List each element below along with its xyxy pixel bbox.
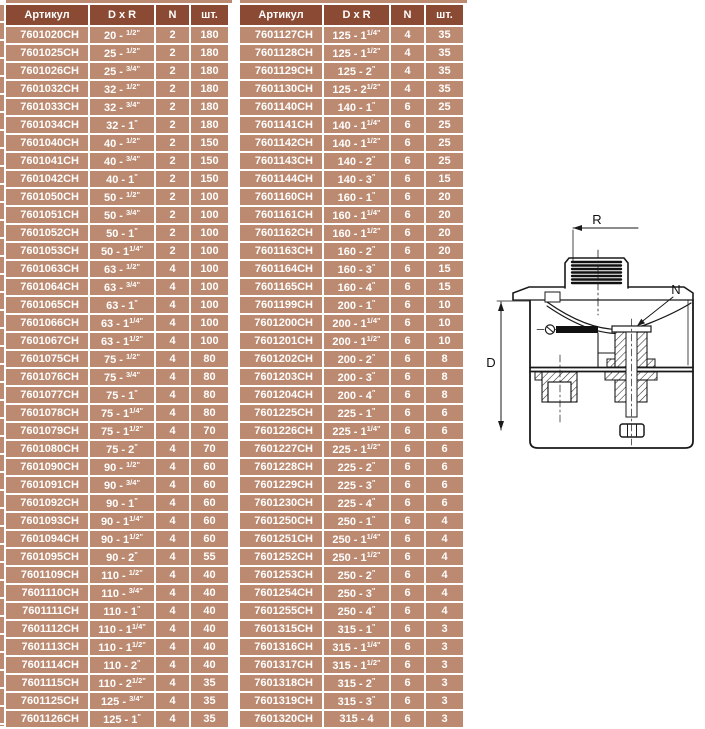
n-cell: 6 — [391, 513, 424, 529]
article-cell: 7601115CH — [6, 675, 88, 691]
qty-cell: 60 — [191, 513, 228, 529]
article-cell: 7601203CH — [240, 369, 322, 385]
table-row: 7601092CH90 - 1"460 — [6, 495, 228, 511]
arrowhead — [498, 421, 504, 430]
qty-cell: 4 — [426, 585, 463, 601]
qty-cell: 4 — [426, 603, 463, 619]
n-cell: 2 — [156, 207, 189, 223]
thread-profile — [572, 262, 621, 283]
n-cell: 6 — [391, 171, 424, 187]
dxr-cell: 25 - 1/2" — [90, 45, 154, 61]
article-cell: 7601317CH — [240, 657, 322, 673]
table-row: 7601042CH40 - 1"2150 — [6, 171, 228, 187]
dxr-cell: 250 - 11/2" — [324, 549, 389, 565]
dxr-cell: 63 - 1/2" — [90, 261, 154, 277]
column-header-n: N — [391, 5, 424, 25]
dimension-label-d: D — [486, 355, 495, 370]
qty-cell: 55 — [191, 549, 228, 565]
n-cell: 4 — [156, 675, 189, 691]
qty-cell: 25 — [426, 153, 463, 169]
article-cell: 7601067CH — [6, 333, 88, 349]
article-cell: 7601230CH — [240, 495, 322, 511]
dxr-cell: 140 - 2" — [324, 153, 389, 169]
dxr-cell: 110 - 11/2" — [90, 639, 154, 655]
dxr-cell: 50 - 3/4" — [90, 207, 154, 223]
table-row: 7601095CH90 - 2"455 — [6, 549, 228, 565]
table-row: 7601204CH200 - 4"68 — [240, 387, 463, 403]
article-cell: 7601255CH — [240, 603, 322, 619]
table-row: 7601050CH50 - 1/2"2100 — [6, 189, 228, 205]
qty-cell: 100 — [191, 189, 228, 205]
dxr-cell: 90 - 11/4" — [90, 513, 154, 529]
n-cell: 6 — [391, 549, 424, 565]
article-cell: 7601140CH — [240, 99, 322, 115]
qty-cell: 80 — [191, 351, 228, 367]
technical-drawing: R D N — [485, 195, 705, 485]
article-cell: 7601040CH — [6, 135, 88, 151]
dxr-cell: 110 - 1/2" — [90, 567, 154, 583]
clamp-collar — [513, 287, 693, 300]
n-cell: 6 — [391, 135, 424, 151]
dxr-cell: 160 - 11/2" — [324, 225, 389, 241]
qty-cell: 180 — [191, 99, 228, 115]
article-cell: 7601050CH — [6, 189, 88, 205]
n-cell: 6 — [391, 153, 424, 169]
article-cell: 7601201CH — [240, 333, 322, 349]
qty-cell: 15 — [426, 261, 463, 277]
article-cell: 7601091CH — [6, 477, 88, 493]
n-cell: 2 — [156, 153, 189, 169]
dxr-cell: 160 - 4" — [324, 279, 389, 295]
n-cell: 4 — [156, 441, 189, 457]
n-cell: 2 — [156, 27, 189, 43]
qty-cell: 3 — [426, 711, 463, 727]
article-cell: 7601114CH — [6, 657, 88, 673]
catalog-page: Артикул D x R N шт. 7601020CH20 - 1/2"21… — [0, 0, 705, 726]
n-cell: 6 — [391, 369, 424, 385]
table-row: 7601093CH90 - 11/4"460 — [6, 513, 228, 529]
qty-cell: 40 — [191, 621, 228, 637]
dxr-cell: 110 - 2" — [90, 657, 154, 673]
article-cell: 7601020CH — [6, 27, 88, 43]
n-cell: 2 — [156, 81, 189, 97]
qty-cell: 10 — [426, 315, 463, 331]
dxr-cell: 250 - 11/4" — [324, 531, 389, 547]
dxr-cell: 50 - 1/2" — [90, 189, 154, 205]
dxr-cell: 225 - 1" — [324, 405, 389, 421]
table-row: 7601077CH75 - 1"480 — [6, 387, 228, 403]
table-row: 7601020CH20 - 1/2"2180 — [6, 27, 228, 43]
qty-cell: 6 — [426, 477, 463, 493]
qty-cell: 60 — [191, 495, 228, 511]
dxr-cell: 75 - 11/2" — [90, 423, 154, 439]
n-cell: 4 — [156, 315, 189, 331]
dxr-cell: 160 - 2" — [324, 243, 389, 259]
qty-cell: 80 — [191, 387, 228, 403]
table-row: 7601025CH25 - 1/2"2180 — [6, 45, 228, 61]
dxr-cell: 200 - 2" — [324, 351, 389, 367]
qty-cell: 3 — [426, 621, 463, 637]
qty-cell: 180 — [191, 117, 228, 133]
article-cell: 7601063CH — [6, 261, 88, 277]
n-cell: 6 — [391, 621, 424, 637]
n-cell: 6 — [391, 243, 424, 259]
table-row: 7601113CH110 - 11/2"440 — [6, 639, 228, 655]
catalog-table-left: Артикул D x R N шт. 7601020CH20 - 1/2"21… — [4, 3, 230, 729]
arrowhead — [498, 302, 504, 311]
qty-cell: 100 — [191, 225, 228, 241]
article-cell: 7601127CH — [240, 27, 322, 43]
dxr-cell: 50 - 11/4" — [90, 243, 154, 259]
n-cell: 2 — [156, 117, 189, 133]
column-header-dxr: D x R — [90, 5, 154, 25]
dxr-cell: 125 - 2" — [324, 63, 389, 79]
column-header-n: N — [156, 5, 189, 25]
qty-cell: 100 — [191, 261, 228, 277]
n-cell: 6 — [391, 99, 424, 115]
dimension-label-r: R — [592, 212, 601, 227]
dxr-cell: 200 - 1" — [324, 297, 389, 313]
article-cell: 7601090CH — [6, 459, 88, 475]
dxr-cell: 110 - 21/2" — [90, 675, 154, 691]
qty-cell: 6 — [426, 495, 463, 511]
dxr-cell: 225 - 11/4" — [324, 423, 389, 439]
article-cell: 7601095CH — [6, 549, 88, 565]
dxr-cell: 200 - 11/2" — [324, 333, 389, 349]
dxr-cell: 315 - 11/4" — [324, 639, 389, 655]
dxr-cell: 110 - 11/4" — [90, 621, 154, 637]
dxr-cell: 63 - 1" — [90, 297, 154, 313]
column-header-dxr: D x R — [324, 5, 389, 25]
qty-cell: 40 — [191, 603, 228, 619]
table-row: 7601228CH225 - 2"66 — [240, 459, 463, 475]
header-row: Артикул D x R N шт. — [240, 5, 463, 25]
table-row: 7601317CH315 - 11/2"63 — [240, 657, 463, 673]
article-cell: 7601053CH — [6, 243, 88, 259]
table-row: 7601112CH110 - 11/4"440 — [6, 621, 228, 637]
dxr-cell: 40 - 1/2" — [90, 135, 154, 151]
qty-cell: 100 — [191, 333, 228, 349]
table-row: 7601251CH250 - 11/4"64 — [240, 531, 463, 547]
table-row: 7601250CH250 - 1"64 — [240, 513, 463, 529]
qty-cell: 100 — [191, 297, 228, 313]
dxr-cell: 32 - 1/2" — [90, 81, 154, 97]
table-row: 7601320CH315 - 463 — [240, 711, 463, 727]
dxr-cell: 110 - 1" — [90, 603, 154, 619]
dimension-label-n: N — [671, 282, 680, 297]
article-cell: 7601228CH — [240, 459, 322, 475]
qty-cell: 35 — [191, 711, 228, 727]
article-cell: 7601165CH — [240, 279, 322, 295]
table-row: 7601128CH125 - 11/2"435 — [240, 45, 463, 61]
dxr-cell: 40 - 3/4" — [90, 153, 154, 169]
table-row: 7601109CH110 - 1/2"440 — [6, 567, 228, 583]
qty-cell: 60 — [191, 531, 228, 547]
qty-cell: 10 — [426, 333, 463, 349]
dxr-cell: 125 - 1" — [90, 711, 154, 727]
table-row: 7601140CH140 - 1"625 — [240, 99, 463, 115]
article-cell: 7601202CH — [240, 351, 322, 367]
n-cell: 2 — [156, 45, 189, 61]
table-row: 7601230CH225 - 4"66 — [240, 495, 463, 511]
qty-cell: 8 — [426, 369, 463, 385]
table-row: 7601125CH125 - 3/4"435 — [6, 693, 228, 709]
table-row: 7601318CH315 - 2"63 — [240, 675, 463, 691]
n-cell: 4 — [156, 477, 189, 493]
dxr-cell: 50 - 1" — [90, 225, 154, 241]
table-row: 7601114CH110 - 2"440 — [6, 657, 228, 673]
table-row: 7601127CH125 - 11/4"435 — [240, 27, 463, 43]
n-cell: 6 — [391, 441, 424, 457]
n-cell: 6 — [391, 207, 424, 223]
dxr-cell: 110 - 3/4" — [90, 585, 154, 601]
table-row: 7601165CH160 - 4"615 — [240, 279, 463, 295]
article-cell: 7601042CH — [6, 171, 88, 187]
qty-cell: 6 — [426, 441, 463, 457]
left-bolt-nut — [548, 382, 571, 402]
table-row: 7601053CH50 - 11/4"2100 — [6, 243, 228, 259]
article-cell: 7601315CH — [240, 621, 322, 637]
dxr-cell: 40 - 1" — [90, 171, 154, 187]
n-cell: 4 — [156, 333, 189, 349]
article-cell: 7601229CH — [240, 477, 322, 493]
article-cell: 7601141CH — [240, 117, 322, 133]
dxr-cell: 140 - 1" — [324, 99, 389, 115]
article-cell: 7601075CH — [6, 351, 88, 367]
dxr-cell: 90 - 11/2" — [90, 531, 154, 547]
dxr-cell: 90 - 1/2" — [90, 459, 154, 475]
article-cell: 7601318CH — [240, 675, 322, 691]
qty-cell: 40 — [191, 639, 228, 655]
n-cell: 4 — [156, 369, 189, 385]
article-cell: 7601162CH — [240, 225, 322, 241]
n-cell: 4 — [391, 63, 424, 79]
qty-cell: 180 — [191, 27, 228, 43]
table-row: 7601143CH140 - 2"625 — [240, 153, 463, 169]
n-cell: 4 — [156, 657, 189, 673]
article-cell: 7601034CH — [6, 117, 88, 133]
n-cell: 4 — [156, 423, 189, 439]
article-cell: 7601041CH — [6, 153, 88, 169]
n-cell: 4 — [156, 405, 189, 421]
n-cell: 4 — [156, 603, 189, 619]
table-row: 7601032CH32 - 1/2"2180 — [6, 81, 228, 97]
n-cell: 6 — [391, 603, 424, 619]
article-cell: 7601163CH — [240, 243, 322, 259]
article-cell: 7601226CH — [240, 423, 322, 439]
qty-cell: 40 — [191, 657, 228, 673]
table-row: 7601064CH63 - 3/4"4100 — [6, 279, 228, 295]
article-cell: 7601204CH — [240, 387, 322, 403]
qty-cell: 25 — [426, 117, 463, 133]
article-cell: 7601065CH — [6, 297, 88, 313]
n-cell: 6 — [391, 459, 424, 475]
table-row: 7601201CH200 - 11/2"610 — [240, 333, 463, 349]
n-cell: 6 — [391, 351, 424, 367]
table-row: 7601226CH225 - 11/4"66 — [240, 423, 463, 439]
dxr-cell: 63 - 11/4" — [90, 315, 154, 331]
qty-cell: 35 — [426, 45, 463, 61]
table-row: 7601160CH160 - 1"620 — [240, 189, 463, 205]
n-cell: 4 — [156, 531, 189, 547]
table-row: 7601200CH200 - 11/4"610 — [240, 315, 463, 331]
table-row: 7601066CH63 - 11/4"4100 — [6, 315, 228, 331]
n-cell: 4 — [156, 459, 189, 475]
n-cell: 6 — [391, 387, 424, 403]
n-cell: 6 — [391, 405, 424, 421]
article-cell: 7601129CH — [240, 63, 322, 79]
qty-cell: 40 — [191, 567, 228, 583]
n-cell: 2 — [156, 63, 189, 79]
table-row: 7601161CH160 - 11/4"620 — [240, 207, 463, 223]
article-cell: 7601093CH — [6, 513, 88, 529]
n-cell: 4 — [156, 297, 189, 313]
qty-cell: 3 — [426, 639, 463, 655]
qty-cell: 35 — [191, 693, 228, 709]
article-cell: 7601128CH — [240, 45, 322, 61]
qty-cell: 4 — [426, 531, 463, 547]
article-cell: 7601126CH — [6, 711, 88, 727]
article-cell: 7601033CH — [6, 99, 88, 115]
article-cell: 7601051CH — [6, 207, 88, 223]
dxr-cell: 250 - 3" — [324, 585, 389, 601]
article-cell: 7601025CH — [6, 45, 88, 61]
dxr-cell: 315 - 1" — [324, 621, 389, 637]
dxr-cell: 315 - 11/2" — [324, 657, 389, 673]
n-cell: 4 — [156, 495, 189, 511]
article-cell: 7601052CH — [6, 225, 88, 241]
article-cell: 7601110CH — [6, 585, 88, 601]
table-row: 7601026CH25 - 3/4"2180 — [6, 63, 228, 79]
n-cell: 6 — [391, 639, 424, 655]
table-row: 7601315CH315 - 1"63 — [240, 621, 463, 637]
qty-cell: 35 — [426, 81, 463, 97]
article-cell: 7601077CH — [6, 387, 88, 403]
qty-cell: 35 — [426, 27, 463, 43]
column-header-qty: шт. — [191, 5, 228, 25]
article-cell: 7601092CH — [6, 495, 88, 511]
n-cell: 2 — [156, 243, 189, 259]
article-cell: 7601113CH — [6, 639, 88, 655]
table-row: 7601078CH75 - 11/4"480 — [6, 405, 228, 421]
qty-cell: 100 — [191, 279, 228, 295]
qty-cell: 100 — [191, 207, 228, 223]
table-row: 7601041CH40 - 3/4"2150 — [6, 153, 228, 169]
table-row: 7601034CH32 - 1"2180 — [6, 117, 228, 133]
n-cell: 4 — [156, 387, 189, 403]
table-row: 7601253CH250 - 2"64 — [240, 567, 463, 583]
dxr-cell: 125 - 11/4" — [324, 27, 389, 43]
qty-cell: 100 — [191, 243, 228, 259]
qty-cell: 180 — [191, 63, 228, 79]
table-row: 7601094CH90 - 11/2"460 — [6, 531, 228, 547]
dxr-cell: 90 - 2" — [90, 549, 154, 565]
table-row: 7601129CH125 - 2"435 — [240, 63, 463, 79]
qty-cell: 180 — [191, 81, 228, 97]
qty-cell: 6 — [426, 405, 463, 421]
n-cell: 6 — [391, 423, 424, 439]
n-cell: 4 — [156, 711, 189, 727]
table-row: 7601164CH160 - 3"615 — [240, 261, 463, 277]
n-cell: 4 — [156, 513, 189, 529]
table-row: 7601229CH225 - 3"66 — [240, 477, 463, 493]
n-cell: 2 — [156, 99, 189, 115]
table-row: 7601067CH63 - 11/2"4100 — [6, 333, 228, 349]
dxr-cell: 315 - 3" — [324, 693, 389, 709]
n-cell: 2 — [156, 189, 189, 205]
n-cell: 4 — [156, 261, 189, 277]
article-cell: 7601320CH — [240, 711, 322, 727]
table-row: 7601319CH315 - 3"63 — [240, 693, 463, 709]
column-header-article: Артикул — [6, 5, 88, 25]
qty-cell: 20 — [426, 189, 463, 205]
qty-cell: 3 — [426, 693, 463, 709]
table-row: 7601162CH160 - 11/2"620 — [240, 225, 463, 241]
table-row: 7601225CH225 - 1"66 — [240, 405, 463, 421]
dxr-cell: 90 - 3/4" — [90, 477, 154, 493]
arrowhead — [573, 225, 582, 231]
article-cell: 7601112CH — [6, 621, 88, 637]
table-row: 7601163CH160 - 2"620 — [240, 243, 463, 259]
dxr-cell: 140 - 11/4" — [324, 117, 389, 133]
clamp-band — [556, 326, 598, 333]
dxr-cell: 200 - 4" — [324, 387, 389, 403]
n-cell: 6 — [391, 477, 424, 493]
qty-cell: 25 — [426, 135, 463, 151]
qty-cell: 80 — [191, 405, 228, 421]
n-cell: 6 — [391, 711, 424, 727]
dxr-cell: 75 - 3/4" — [90, 369, 154, 385]
dxr-cell: 160 - 1" — [324, 189, 389, 205]
table-row: 7601091CH90 - 3/4"460 — [6, 477, 228, 493]
dxr-cell: 250 - 4" — [324, 603, 389, 619]
n-cell: 4 — [156, 639, 189, 655]
dxr-cell: 250 - 1" — [324, 513, 389, 529]
n-cell: 4 — [156, 549, 189, 565]
table-row: 7601065CH63 - 1"4100 — [6, 297, 228, 313]
n-cell: 4 — [156, 279, 189, 295]
table-row: 7601199CH200 - 1"610 — [240, 297, 463, 313]
table-row: 7601316CH315 - 11/4"63 — [240, 639, 463, 655]
dxr-cell: 32 - 3/4" — [90, 99, 154, 115]
article-cell: 7601250CH — [240, 513, 322, 529]
dxr-cell: 75 - 2" — [90, 441, 154, 457]
table-row: 7601063CH63 - 1/2"4100 — [6, 261, 228, 277]
qty-cell: 10 — [426, 297, 463, 313]
qty-cell: 6 — [426, 423, 463, 439]
n-cell: 2 — [156, 171, 189, 187]
article-cell: 7601164CH — [240, 261, 322, 277]
article-cell: 7601080CH — [6, 441, 88, 457]
dxr-cell: 90 - 1" — [90, 495, 154, 511]
qty-cell: 35 — [191, 675, 228, 691]
article-cell: 7601125CH — [6, 693, 88, 709]
qty-cell: 4 — [426, 513, 463, 529]
table-row: 7601144CH140 - 3"615 — [240, 171, 463, 187]
article-cell: 7601143CH — [240, 153, 322, 169]
n-cell: 4 — [156, 693, 189, 709]
article-cell: 7601032CH — [6, 81, 88, 97]
n-cell: 4 — [391, 27, 424, 43]
dxr-cell: 75 - 1/2" — [90, 351, 154, 367]
table-row: 7601051CH50 - 3/4"2100 — [6, 207, 228, 223]
qty-cell: 100 — [191, 315, 228, 331]
n-cell: 4 — [156, 567, 189, 583]
dxr-cell: 225 - 4" — [324, 495, 389, 511]
table-row: 7601111CH110 - 1"440 — [6, 603, 228, 619]
article-cell: 7601254CH — [240, 585, 322, 601]
hex-nut — [620, 424, 644, 437]
